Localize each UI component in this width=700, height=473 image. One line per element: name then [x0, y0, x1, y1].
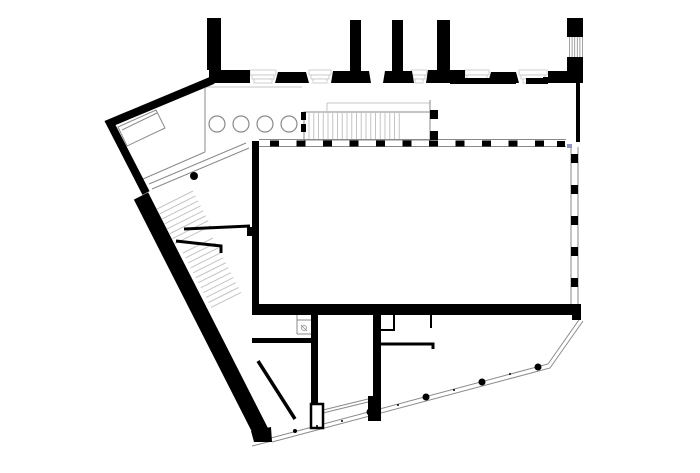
facade-base-profile-3-step-2 — [413, 75, 425, 79]
hall-north-glazing-posts-post — [403, 141, 412, 147]
facade-pilaster-1 — [275, 72, 309, 83]
se-facade-column-3 — [423, 394, 430, 401]
pier-c-foot — [383, 71, 414, 83]
se-facade-column-2 — [479, 379, 486, 386]
pier-d-foot — [426, 70, 465, 83]
core-east-wall — [373, 315, 381, 399]
core-closet — [311, 404, 323, 428]
se-facade-tick-3 — [397, 404, 399, 406]
core-east-block — [368, 396, 381, 421]
se-facade-tick-5 — [316, 425, 318, 427]
facade-pier-d — [437, 20, 450, 72]
hall-east-glazing-posts-post — [571, 247, 578, 256]
facade-base-profile-1 — [250, 70, 276, 83]
hall-se-corner-post — [572, 304, 581, 320]
facade-pier-c — [392, 20, 403, 72]
hall-north-glazing-posts-post — [323, 141, 332, 147]
hall-west-pilaster — [247, 227, 252, 236]
north-stair-post-b — [430, 131, 438, 140]
hall-north-glazing-posts-post — [429, 141, 438, 147]
south-partition-wall — [252, 338, 311, 343]
facade-pier-a — [207, 18, 221, 70]
pier-b-foot — [331, 71, 371, 83]
ramp-column — [190, 172, 198, 180]
hall-west-wall — [252, 141, 259, 315]
hall-north-glazing-posts-post — [535, 141, 544, 147]
facade-base-profile-3-step-1 — [411, 70, 427, 75]
render-artifact — [567, 144, 572, 148]
hall-north-glazing-posts-post — [376, 141, 385, 147]
facade-base-profile-3-step-3 — [415, 79, 423, 83]
hall-east-glazing-posts-post — [571, 278, 578, 287]
hall-east-glazing-posts-post — [571, 154, 578, 163]
se-facade-column-4 — [367, 409, 374, 416]
hall-north-glazing-posts-post — [270, 141, 279, 147]
facade-pilaster-2 — [488, 72, 519, 83]
hall-north-glazing-posts-post — [456, 141, 465, 147]
core-west-wall — [311, 315, 318, 407]
north-stair-mullion-a — [301, 112, 306, 120]
hall-north-glazing-posts-post — [350, 141, 359, 147]
se-facade-column-1 — [535, 364, 542, 371]
hall-north-glazing-posts-post — [297, 141, 306, 147]
floor-plan-page — [0, 0, 700, 473]
se-facade-tick-2 — [453, 389, 455, 391]
colonnade-column-4 — [281, 116, 297, 132]
colonnade-column-2 — [233, 116, 249, 132]
hall-ne-corner-post — [557, 141, 565, 147]
facade-base-profile-1-step-3 — [254, 79, 272, 83]
upper-east-wall — [576, 83, 580, 142]
facade-base-profile-1-step-1 — [250, 70, 276, 75]
hall-north-glazing-posts-post — [509, 141, 518, 147]
facade-pier-b — [350, 20, 361, 72]
se-facade-tick-4 — [341, 420, 343, 422]
floor-plan-drawing — [0, 0, 700, 473]
colonnade-column-1 — [209, 116, 225, 132]
colonnade-column-3 — [257, 116, 273, 132]
north-stair-post-a — [430, 110, 438, 119]
facade-base-profile-2-step-1 — [309, 70, 331, 75]
facade-base-profile-1-step-2 — [252, 75, 274, 79]
north-stair-mullion-b — [301, 124, 306, 132]
se-facade-tick-1 — [509, 373, 511, 375]
hall-east-glazing-posts-post — [571, 185, 578, 194]
hall-south-wall — [252, 304, 581, 315]
facade-band-left — [209, 70, 250, 83]
se-facade-column-5 — [293, 429, 297, 433]
hall-north-glazing-posts-post — [482, 141, 491, 147]
corner-pier-cap — [567, 18, 583, 37]
hall-east-glazing-posts-post — [571, 216, 578, 225]
facade-base-profile-5-step-1 — [519, 70, 547, 75]
facade-base-profile-2-step-2 — [311, 75, 329, 79]
facade-base-profile-2-step-3 — [313, 79, 327, 83]
facade-base-profile-4-step-1 — [465, 70, 489, 75]
